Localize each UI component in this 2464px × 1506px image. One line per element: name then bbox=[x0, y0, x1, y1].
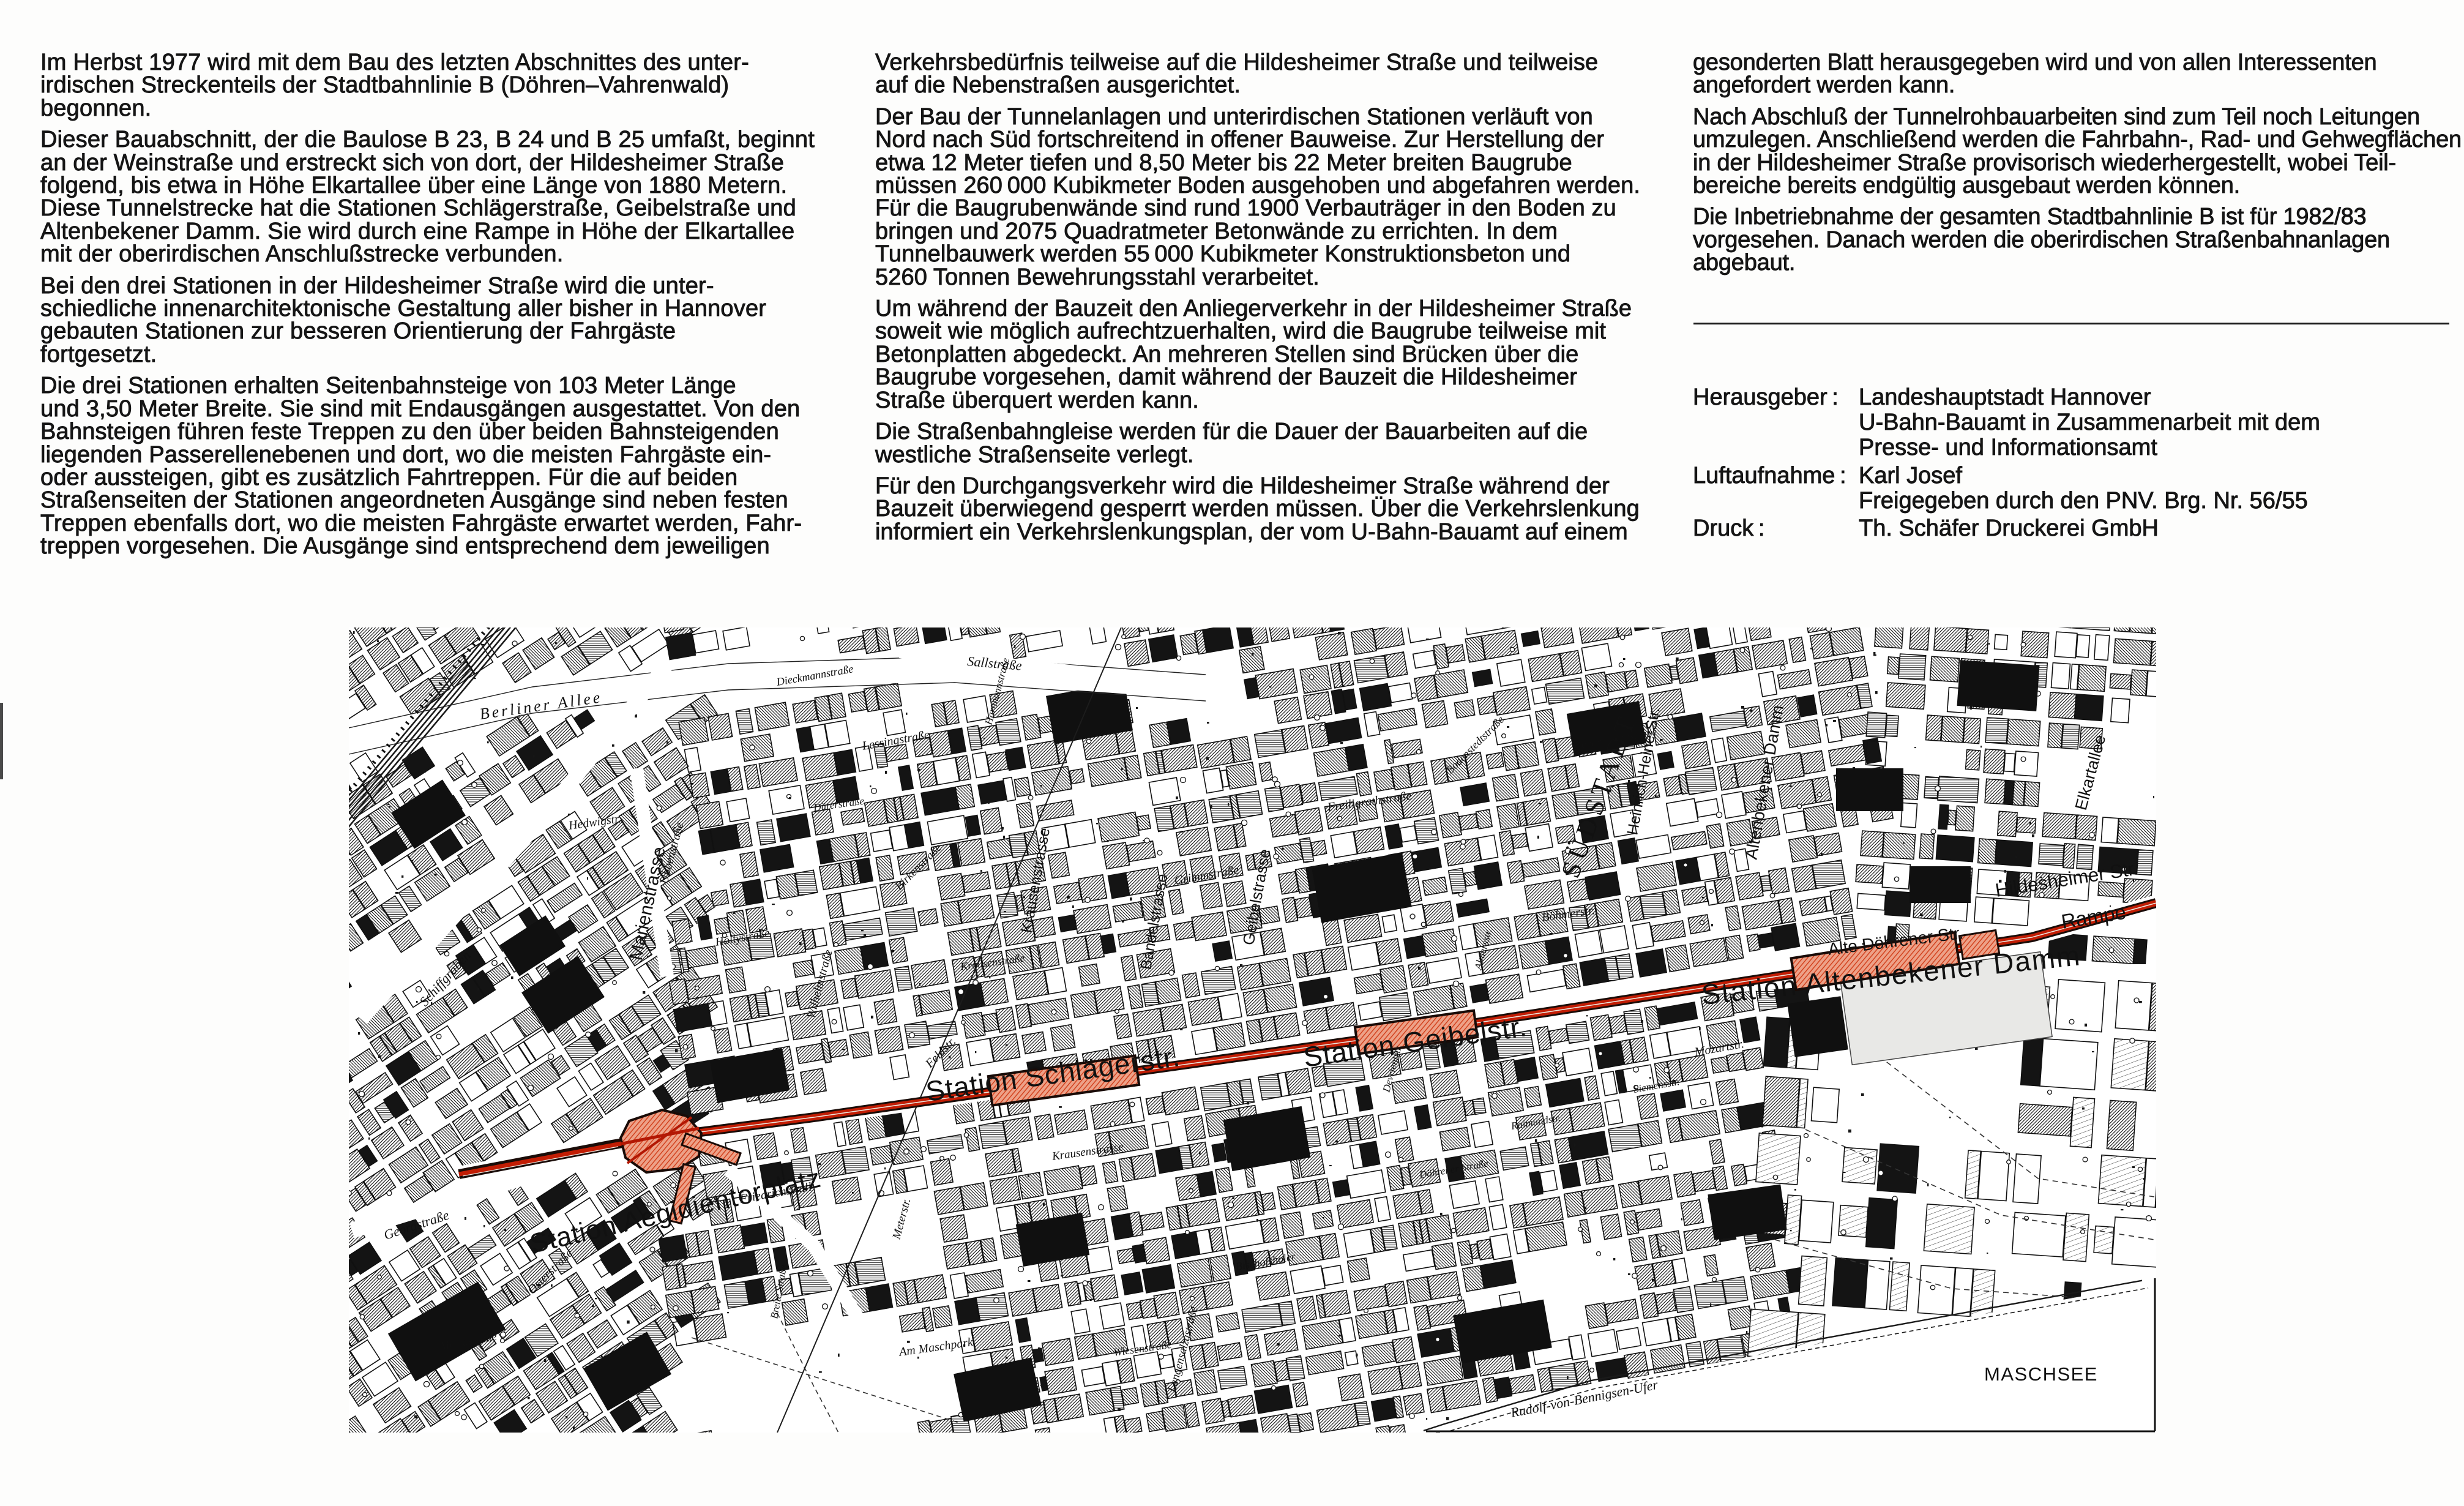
svg-text:MASCHSEE: MASCHSEE bbox=[1984, 1363, 2098, 1385]
